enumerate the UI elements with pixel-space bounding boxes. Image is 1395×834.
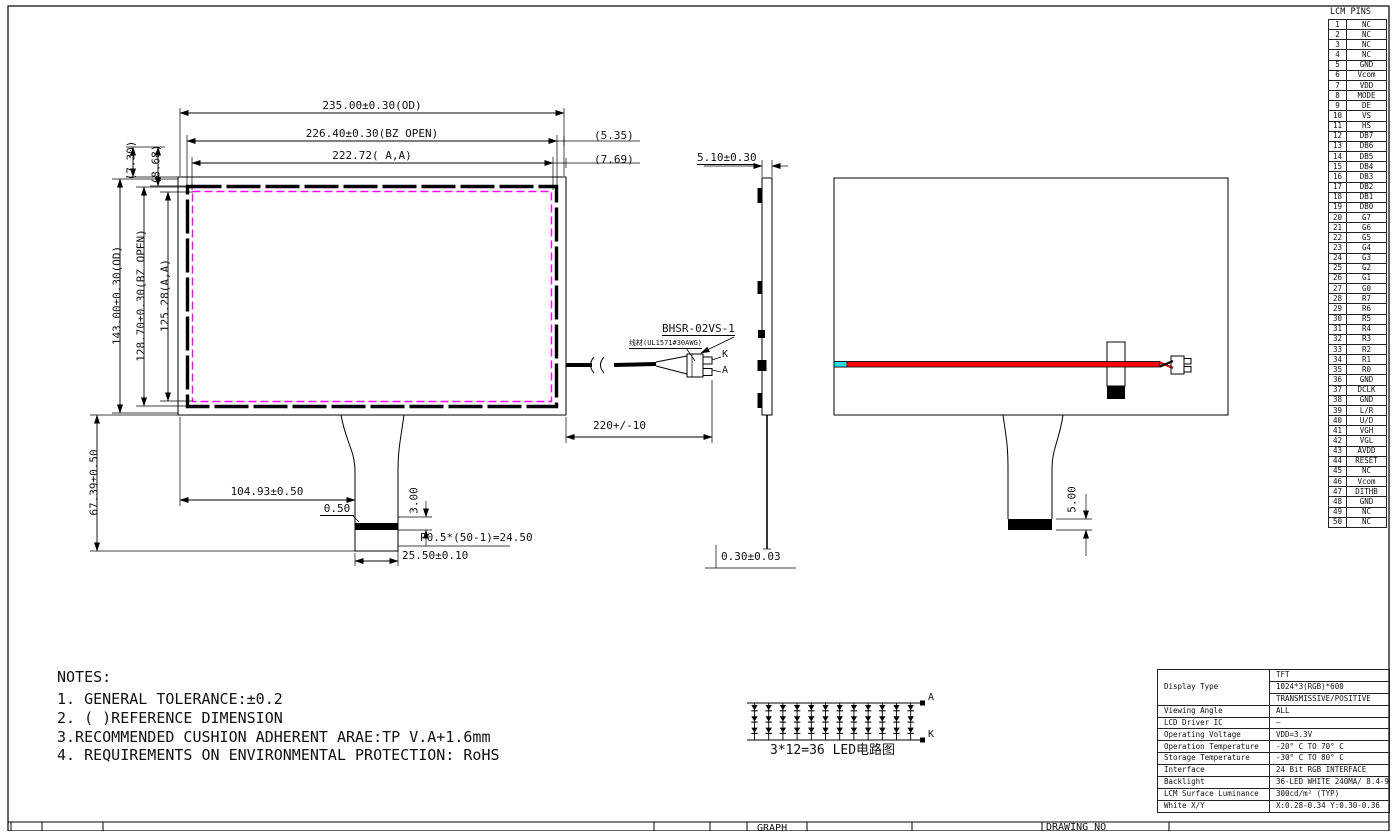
pin-row: 8MODE [1329,91,1387,101]
pin-row: 24G3 [1329,253,1387,263]
pin-number: 42 [1329,436,1347,446]
note-line-3: 3.RECOMMENDED CUSHION ADHERENT ARAE:TP V… [57,730,490,745]
pin-name: NC [1347,30,1387,40]
pin-row: 48GND [1329,497,1387,507]
pin-row: 37DCLK [1329,385,1387,395]
led-circuit-caption: 3*12=36 LED电路图 [760,744,905,757]
dim-od-height: 143.00±0.30(OD) [112,221,123,371]
pin-row: 5GND [1329,60,1387,70]
led-symbol [908,728,914,733]
backlight-wire-red [834,362,1160,368]
note-line-4: 4. REQUIREMENTS ON ENVIRONMENTAL PROTECT… [57,748,500,763]
pin-number: 43 [1329,446,1347,456]
led-symbol [794,716,800,721]
pin-number: 8 [1329,91,1347,101]
pin-name: R2 [1347,345,1387,355]
spec-value: 300cd/m² (TYP) [1270,788,1390,800]
pin-name: GND [1347,60,1387,70]
pin-name: L/R [1347,405,1387,415]
pin-row: 33R2 [1329,345,1387,355]
rear-connector-pin [1184,359,1191,365]
pin-number: 15 [1329,162,1347,172]
led-symbol [908,705,914,710]
pin-name: DB1 [1347,192,1387,202]
pin-name: NC [1347,507,1387,517]
led-symbol [865,728,871,733]
pin-name: DCLK [1347,385,1387,395]
pin-row: 9DE [1329,101,1387,111]
pin-row: 43AVDD [1329,446,1387,456]
pin-number: 40 [1329,416,1347,426]
engineering-drawing-sheet: { "drawing": { "dims": { "od_width": "23… [0,0,1395,831]
pin-number: 49 [1329,507,1347,517]
pin-number: 30 [1329,314,1347,324]
pin-row: 36GND [1329,375,1387,385]
front-outline [178,177,566,415]
pin-row: 35R0 [1329,365,1387,375]
dim-fpc-bottom-offset: 67.39±0.50 [89,438,100,528]
dim-bz-height: 128.70±0.30(BZ OPEN) [136,216,147,376]
lcm-pins-table: LCM PINS 1NC2NC3NC4NC5GND6Vcom7VDD8MODE9… [1328,7,1387,528]
pin-row: 18DB1 [1329,192,1387,202]
pin-number: 28 [1329,294,1347,304]
pin-number: 25 [1329,263,1347,273]
spec-label: Viewing Angle [1158,705,1270,717]
pin-number: 47 [1329,487,1347,497]
pin-row: 30R5 [1329,314,1387,324]
pin-name: G3 [1347,253,1387,263]
cable-break-mark [591,357,605,373]
pin-name: DB2 [1347,182,1387,192]
spec-label: Operating Voltage [1158,729,1270,741]
pin-row: 32R3 [1329,334,1387,344]
side-tape-tab [758,393,763,408]
dim-module-thickness: 5.10±0.30 [697,152,757,165]
pin-number: 16 [1329,172,1347,182]
spec-row: LCM Surface Luminance300cd/m² (TYP) [1158,788,1390,800]
spec-label: LCM Surface Luminance [1158,788,1270,800]
spec-value: — [1270,717,1390,729]
pin-name: R0 [1347,365,1387,375]
pin-name: U/D [1347,416,1387,426]
spec-row: Viewing AngleALL [1158,705,1390,717]
pin-number: 36 [1329,375,1347,385]
title-block-graph-label: GRAPH [757,824,787,834]
note-line-2: 2. ( )REFERENCE DIMENSION [57,711,283,726]
led-symbol [865,716,871,721]
pin-number: 2 [1329,30,1347,40]
led-symbol [751,705,757,710]
pin-number: 44 [1329,456,1347,466]
pin-row: 21G6 [1329,223,1387,233]
dim-fpc-width: 25.50±0.10 [402,550,468,561]
connector-leader [701,337,734,353]
pin-row: 22G5 [1329,233,1387,243]
led-symbol [837,728,843,733]
pin-name: R7 [1347,294,1387,304]
pin-number: 14 [1329,152,1347,162]
pin-number: 13 [1329,141,1347,151]
dim-aa-height: 125.28(A,A) [160,241,171,351]
spec-value: -20° C TO 70° C [1270,741,1390,753]
spec-label: Backlight [1158,777,1270,789]
spec-label: LCD Driver IC [1158,717,1270,729]
pin-row: 31R4 [1329,324,1387,334]
pin-name: GND [1347,497,1387,507]
pin-number: 22 [1329,233,1347,243]
pin-number: 5 [1329,60,1347,70]
dim-top-left-ref-2: (8.68) [151,143,162,187]
pin-row: 15DB4 [1329,162,1387,172]
dim-cable-length: 220+/-10 [593,420,646,431]
pin-name: G6 [1347,223,1387,233]
pin-number: 33 [1329,345,1347,355]
pin-row: 26G1 [1329,273,1387,283]
front-bezel-tape [188,187,557,407]
led-symbol [780,716,786,721]
spec-table: Display TypeTFT1024*3(RGB)*600TRANSMISSI… [1157,669,1390,813]
led-symbol [808,728,814,733]
pin-row: 13DB6 [1329,141,1387,151]
connector-pin-k-label: K [722,350,728,360]
side-tape-tab [758,281,763,294]
side-tape-tab [758,330,765,338]
spec-value: 36-LED WHITE 240MA/ 8.4-9.6V [1270,777,1390,789]
pin-row: 6Vcom [1329,70,1387,80]
pin-name: G7 [1347,212,1387,222]
pin-row: 1NC [1329,20,1387,30]
pin-number: 29 [1329,304,1347,314]
pin-row: 20G7 [1329,212,1387,222]
dim-right-ref-1: (5.35) [594,130,634,141]
pin-number: 48 [1329,497,1347,507]
pin-number: 1 [1329,20,1347,30]
rear-view [834,178,1228,556]
pin-name: VGL [1347,436,1387,446]
pin-name: GND [1347,375,1387,385]
pin-name: DB7 [1347,131,1387,141]
spec-value: TFT [1270,670,1390,682]
pin-row: 14DB5 [1329,152,1387,162]
cable-split-wires [656,356,687,374]
rear-fpc-tail [1003,415,1063,519]
dim-rear-stiffener-height: 5.00 [1067,481,1078,519]
pin-name: VGH [1347,426,1387,436]
pin-row: 34R1 [1329,355,1387,365]
pin-row: 16DB3 [1329,172,1387,182]
pin-row: 2NC [1329,30,1387,40]
cathode-terminal [920,738,925,743]
pin-row: 4NC [1329,50,1387,60]
pin-number: 38 [1329,395,1347,405]
led-circuit [747,701,925,743]
pin-row: 10VS [1329,111,1387,121]
note-line-1: 1. GENERAL TOLERANCE:±0.2 [57,692,283,707]
dim-right-ref-2: (7.69) [594,154,634,165]
rear-fpc-stiffener [1008,519,1052,530]
led-symbol [851,716,857,721]
spec-label: Interface [1158,765,1270,777]
pin-name: NC [1347,20,1387,30]
connector-body [687,354,703,377]
dim-stiffener-height: 3.00 [409,482,420,520]
pin-row: 12DB7 [1329,131,1387,141]
pin-name: G4 [1347,243,1387,253]
pin-number: 3 [1329,40,1347,50]
pin-row: 25G2 [1329,263,1387,273]
pin-number: 23 [1329,243,1347,253]
pin-row: 38GND [1329,395,1387,405]
led-symbol [837,716,843,721]
led-symbol [851,705,857,710]
pin-row: 39L/R [1329,405,1387,415]
pin-name: R4 [1347,324,1387,334]
dim-fpc-center-x: 104.93±0.50 [200,486,334,497]
led-symbol [751,728,757,733]
pin-number: 41 [1329,426,1347,436]
spec-table-body: Display TypeTFT1024*3(RGB)*600TRANSMISSI… [1158,670,1390,813]
dim-fpc-thickness: 0.30±0.03 [721,551,781,562]
connector-part-no: BHSR-02VS-1 [662,323,735,336]
led-symbol [766,705,772,710]
led-symbol [822,728,828,733]
pin-number: 9 [1329,101,1347,111]
spec-value: X:0.28-0.34 Y:0.30-0.36 [1270,800,1390,812]
led-symbol [808,705,814,710]
spec-row: Storage Temperature-30° C TO 80° C [1158,753,1390,765]
pin-name: G1 [1347,273,1387,283]
pin-number: 31 [1329,324,1347,334]
rear-outline [834,178,1228,415]
pin-number: 27 [1329,284,1347,294]
led-symbol [851,728,857,733]
pin-number: 7 [1329,80,1347,90]
dim-bz-width: 226.40±0.30(BZ OPEN) [255,128,489,139]
connector-pin-k [703,357,712,364]
pin-name: RESET [1347,456,1387,466]
front-fpc-tail [341,415,404,551]
pin-name: NC [1347,466,1387,476]
led-symbol [893,728,899,733]
pin-name: R3 [1347,334,1387,344]
pin-name: DITHB [1347,487,1387,497]
led-symbol [780,728,786,733]
led-symbol [908,716,914,721]
led-symbol [893,716,899,721]
pin-name: VDD [1347,80,1387,90]
pin-number: 34 [1329,355,1347,365]
rear-black-block [1107,386,1125,399]
pin-number: 10 [1329,111,1347,121]
pin-number: 19 [1329,202,1347,212]
pin-name: R1 [1347,355,1387,365]
pin-number: 35 [1329,365,1347,375]
title-block-drawing-no-label: DRAWING NO [1046,823,1106,833]
pin-name: DB4 [1347,162,1387,172]
spec-value: VDD=3.3V [1270,729,1390,741]
led-symbol [837,705,843,710]
pin-name: R5 [1347,314,1387,324]
pin-name: R6 [1347,304,1387,314]
lcm-pins-body: 1NC2NC3NC4NC5GND6Vcom7VDD8MODE9DE10VS11H… [1329,20,1387,528]
pin-row: 49NC [1329,507,1387,517]
connector-pin-a [703,369,712,376]
pin-number: 11 [1329,121,1347,131]
pin-row: 42VGL [1329,436,1387,446]
pin-name: G0 [1347,284,1387,294]
spec-value: TRANSMISSIVE/POSITIVE [1270,693,1390,705]
notes-title: NOTES: [57,670,111,685]
side-tape-tab [758,188,763,203]
pin-row: 29R6 [1329,304,1387,314]
backlight-wire-tip [834,362,847,368]
pin-name: DB3 [1347,172,1387,182]
pin-name: DB6 [1347,141,1387,151]
pin-name: G5 [1347,233,1387,243]
pin-number: 24 [1329,253,1347,263]
pin-number: 17 [1329,182,1347,192]
pin-name: Vcom [1347,70,1387,80]
spec-row: White X/YX:0.28-0.34 Y:0.30-0.36 [1158,800,1390,812]
spec-label: Operation Temperature [1158,741,1270,753]
wire-spec-label: 线材(UL1571#30AWG) [629,340,702,349]
pin-row: 45NC [1329,466,1387,476]
pin-row: 50NC [1329,517,1387,527]
spec-label: Display Type [1158,670,1270,706]
led-symbol [879,716,885,721]
led-symbol [865,705,871,710]
pin-row: 7VDD [1329,80,1387,90]
pin-name: NC [1347,50,1387,60]
spec-row: Display TypeTFT [1158,670,1390,682]
dim-od-width: 235.00±0.30(OD) [260,100,484,111]
anode-terminal [920,701,925,706]
side-tape-tab [758,360,767,371]
pin-row: 23G4 [1329,243,1387,253]
spec-label: White X/Y [1158,800,1270,812]
pin-row: 17DB2 [1329,182,1387,192]
rear-connector [1171,356,1184,374]
led-cathode-label: K [928,730,934,740]
pin-number: 12 [1329,131,1347,141]
pin-number: 18 [1329,192,1347,202]
spec-row: Backlight36-LED WHITE 240MA/ 8.4-9.6V [1158,777,1390,789]
spec-value: ALL [1270,705,1390,717]
pin-row: 47DITHB [1329,487,1387,497]
rear-connector-pin [1184,367,1191,373]
pin-row: 41VGH [1329,426,1387,436]
led-anode-label: A [928,693,934,703]
pin-number: 39 [1329,405,1347,415]
led-symbol [766,716,772,721]
pin-number: 21 [1329,223,1347,233]
spec-row: LCD Driver IC— [1158,717,1390,729]
led-symbol [808,716,814,721]
side-profile [762,178,772,415]
front-active-area [193,192,552,402]
spec-value: -30° C TO 80° C [1270,753,1390,765]
pin-row: 19DB0 [1329,202,1387,212]
lcm-pins-title: LCM PINS [1330,7,1387,17]
pin-row: 3NC [1329,40,1387,50]
led-symbol [879,705,885,710]
led-symbol [822,716,828,721]
spec-row: Operating VoltageVDD=3.3V [1158,729,1390,741]
dim-aa-width: 222.72( A,A) [300,150,444,161]
pin-row: 40U/D [1329,416,1387,426]
connector-pin-a-label: A [722,366,728,376]
spec-label: Storage Temperature [1158,753,1270,765]
pin-number: 6 [1329,70,1347,80]
pin-number: 45 [1329,466,1347,476]
dim-stiffener-inset: 0.50 [320,503,354,516]
spec-value: 1024*3(RGB)*600 [1270,681,1390,693]
pin-name: VS [1347,111,1387,121]
led-symbol [794,728,800,733]
pin-name: NC [1347,517,1387,527]
pin-number: 4 [1329,50,1347,60]
pin-name: AVDD [1347,446,1387,456]
led-symbol [794,705,800,710]
spec-value: 24 Bit RGB INTERFACE [1270,765,1390,777]
led-grid [751,703,914,740]
led-symbol [893,705,899,710]
led-symbol [780,705,786,710]
led-symbol [879,728,885,733]
pin-name: NC [1347,40,1387,50]
pin-name: GND [1347,395,1387,405]
pin-number: 46 [1329,477,1347,487]
pin-number: 20 [1329,212,1347,222]
pin-row: 46Vcom [1329,477,1387,487]
front-fpc-stiffener [355,523,398,530]
spec-row: Interface24 Bit RGB INTERFACE [1158,765,1390,777]
led-symbol [751,716,757,721]
spec-row: Operation Temperature-20° C TO 70° C [1158,741,1390,753]
pin-name: Vcom [1347,477,1387,487]
pin-name: DB5 [1347,152,1387,162]
pin-name: MODE [1347,91,1387,101]
cable-segment [614,364,656,365]
dim-pin-pitch: P0.5*(50-1)=24.50 [420,532,533,543]
pin-name: HS [1347,121,1387,131]
led-symbol [822,705,828,710]
led-symbol [766,728,772,733]
dim-top-left-ref-1: (7.30) [126,139,137,183]
pin-row: 28R7 [1329,294,1387,304]
title-block-strip [8,822,1389,831]
pin-number: 50 [1329,517,1347,527]
pin-row: 27G0 [1329,284,1387,294]
pin-name: DB0 [1347,202,1387,212]
pin-number: 32 [1329,334,1347,344]
pin-number: 26 [1329,273,1347,283]
pin-row: 44RESET [1329,456,1387,466]
pin-row: 11HS [1329,121,1387,131]
pin-number: 37 [1329,385,1347,395]
pin-name: DE [1347,101,1387,111]
pin-name: G2 [1347,263,1387,273]
